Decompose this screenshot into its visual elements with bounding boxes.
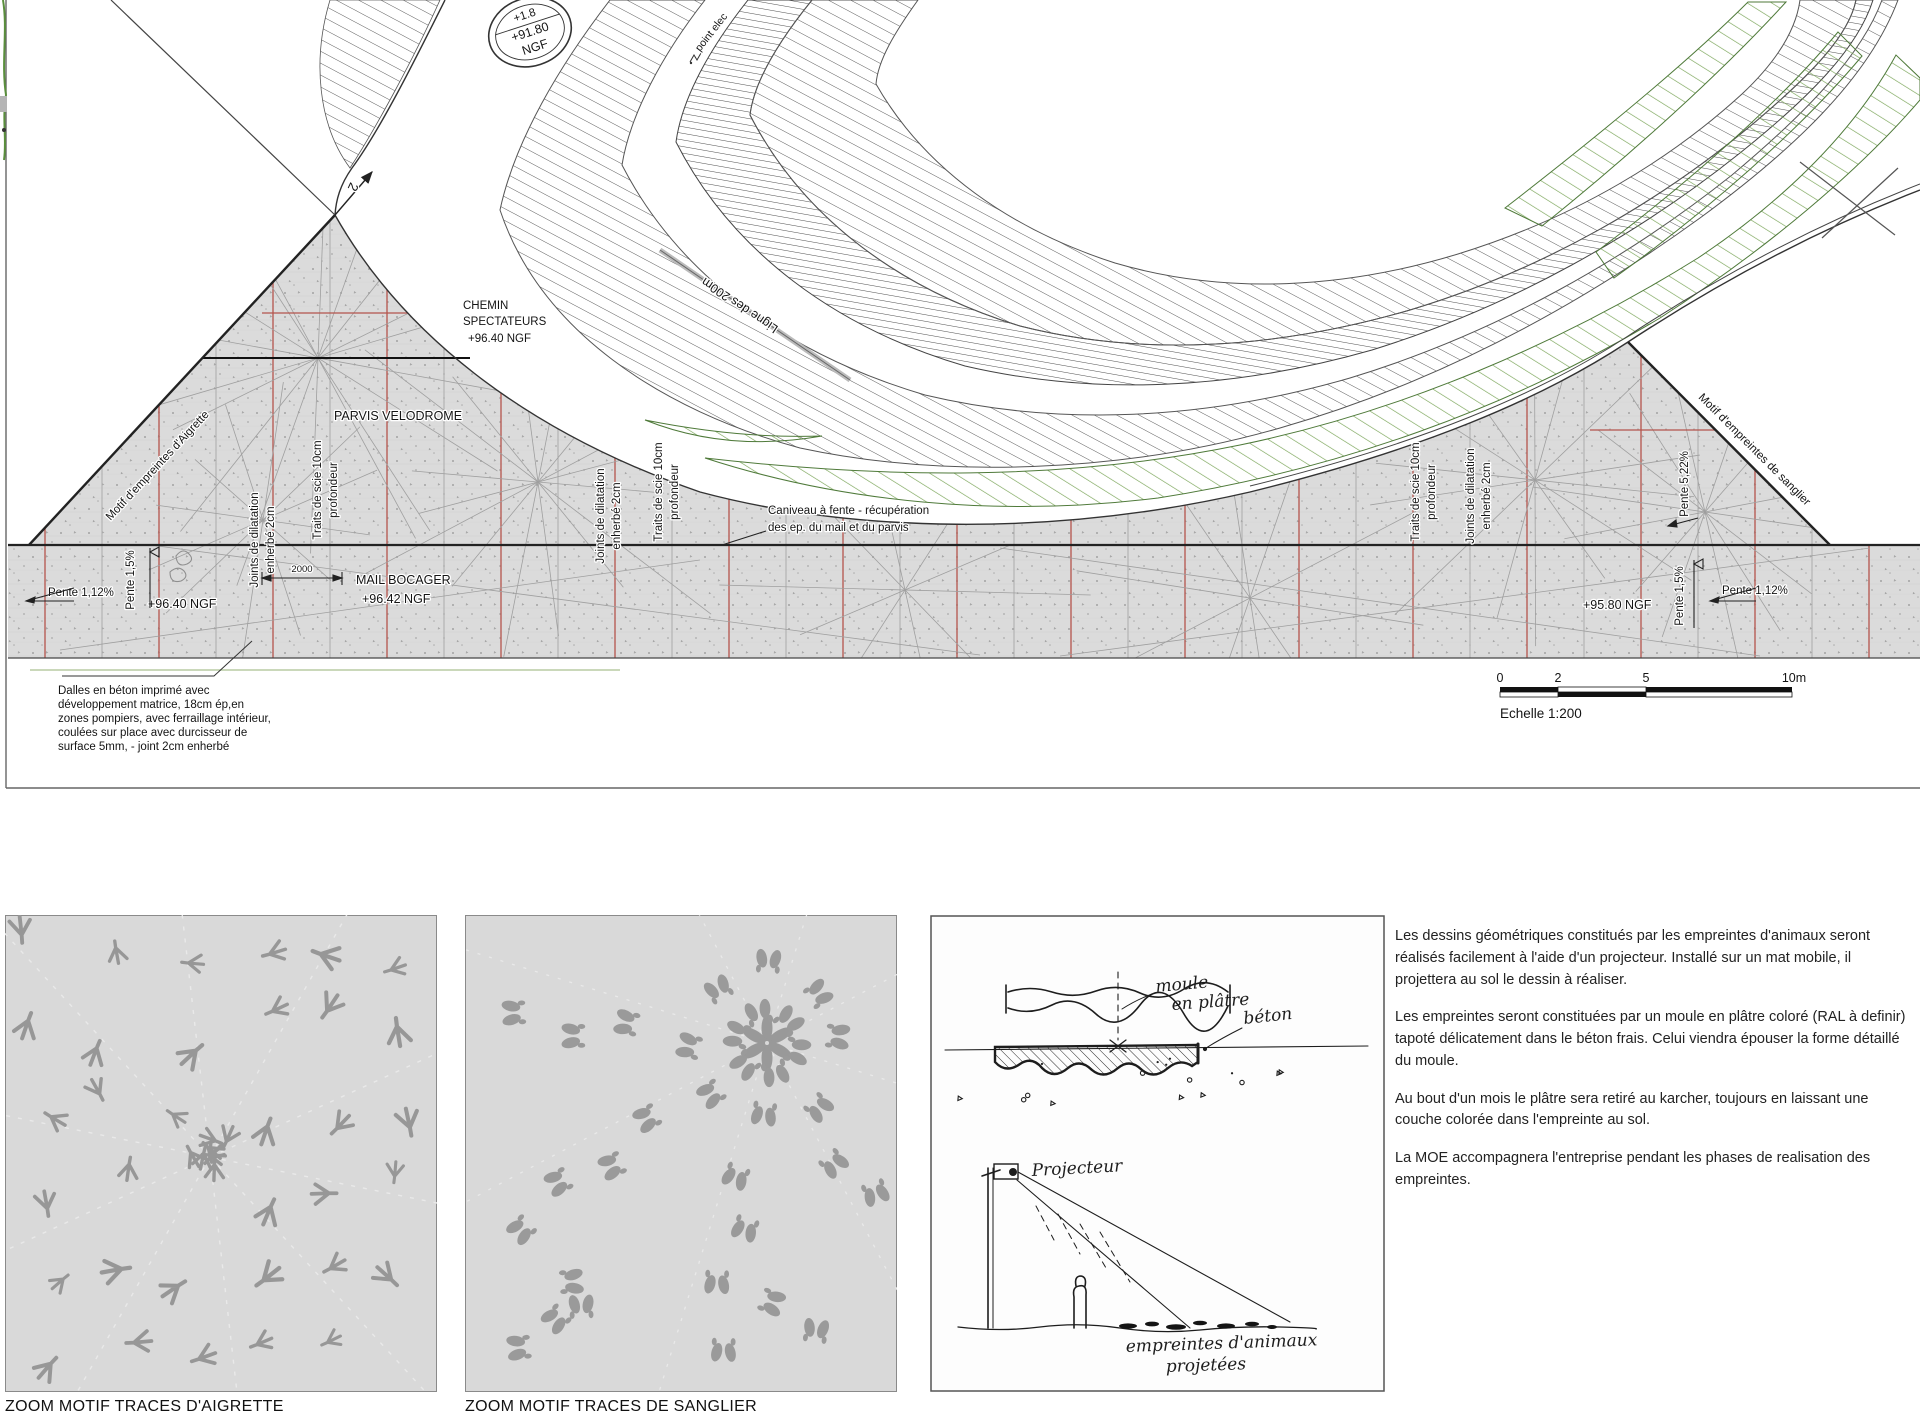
note-line: Dalles en béton imprimé avec <box>58 685 210 697</box>
traits-label: profondeur <box>328 462 340 518</box>
plan-drawing: Ligne des 200m 2 +1.8 +91.80 NGF point e… <box>0 0 1920 800</box>
scale-tick: 0 <box>1497 671 1504 685</box>
paragraph-2: Les empreintes seront constituées par un… <box>1395 1007 1913 1072</box>
pente-label: Pente 1,12% <box>48 587 114 599</box>
parvis-label: PARVIS VELODROME <box>334 409 462 423</box>
joints-label: enherbé 2cm <box>611 482 623 549</box>
chemin-elevation: +96.40 NGF <box>468 333 531 345</box>
joints-label: enherbé 2cm <box>1481 462 1493 529</box>
note-line: zones pompiers, avec ferraillage intérie… <box>58 713 271 725</box>
chemin-label-2: SPECTATEURS <box>463 316 547 328</box>
traits-label: profondeur <box>1426 464 1438 520</box>
joints-label: Joints de dilatation <box>1465 448 1477 543</box>
traits-label: Traits de scie 10cm <box>1410 442 1422 541</box>
note-line: coulées sur place avec durcisseur de <box>58 727 247 739</box>
paragraph-3: Au bout d'un mois le plâtre sera retiré … <box>1395 1089 1913 1133</box>
joints-label: Joints de dilatation <box>595 468 607 563</box>
chemin-label-1: CHEMIN <box>463 300 508 312</box>
pente-label: Pente 5,22% <box>1679 451 1691 517</box>
panel-background <box>6 916 437 1392</box>
scale-tick: 2 <box>1555 671 1562 685</box>
caption-aigrette: ZOOM MOTIF TRACES D'AIGRETTE <box>5 1398 284 1416</box>
empreintes-label-2: projetées <box>1165 1354 1246 1377</box>
mail-elevation: +96.42 NGF <box>362 592 431 606</box>
scale-tick: 5 <box>1643 671 1650 685</box>
elevation-label: +95.80 NGF <box>1583 598 1652 612</box>
elevation-label: +96.40 NGF <box>148 597 217 611</box>
traits-label: Traits de scie 10cm <box>312 440 324 539</box>
section-number: 2 <box>345 180 362 193</box>
pente-label: Pente 1,5% <box>125 550 137 609</box>
traits-label: profondeur <box>669 464 681 520</box>
note-line: développement matrice, 18cm ép,en <box>58 699 244 711</box>
joints-label: enherbé 2cm <box>265 506 277 573</box>
panel-sanglier-tracks <box>465 915 897 1392</box>
note-line: surface 5mm, - joint 2cm enherbé <box>58 741 229 753</box>
caniveau-label-1: Caniveau à fente - récupération <box>768 505 929 517</box>
caniveau-label-2: des ep. du mail et du parvis <box>768 522 909 534</box>
caption-sanglier: ZOOM MOTIF TRACES DE SANGLIER <box>465 1398 757 1416</box>
scale-bar: 0 2 5 10m Echelle 1:200 <box>1497 671 1807 721</box>
mail-bocager-label: MAIL BOCAGER <box>356 573 451 587</box>
panel-aigrette-tracks <box>5 915 437 1392</box>
joints-label: Joints de dilatation <box>249 492 261 587</box>
drawing-sheet: Ligne des 200m 2 +1.8 +91.80 NGF point e… <box>0 0 1920 1428</box>
traits-label: Traits de scie 10cm <box>653 442 665 541</box>
method-text-block: Les dessins géométriques constitués par … <box>1395 926 1913 1208</box>
pente-label: Pente 1,5% <box>1674 566 1686 625</box>
scale-tick: 10m <box>1782 671 1806 685</box>
dim-2000: 2000 <box>291 564 312 575</box>
panel-sketch: moule en plâtre béton Projecteur emprein… <box>930 915 1385 1392</box>
scale-caption: Echelle 1:200 <box>1500 706 1582 721</box>
outer-hatch-wedge <box>320 0 440 168</box>
paragraph-1: Les dessins géométriques constitués par … <box>1395 926 1913 991</box>
paragraph-4: La MOE accompagnera l'entreprise pendant… <box>1395 1148 1913 1192</box>
